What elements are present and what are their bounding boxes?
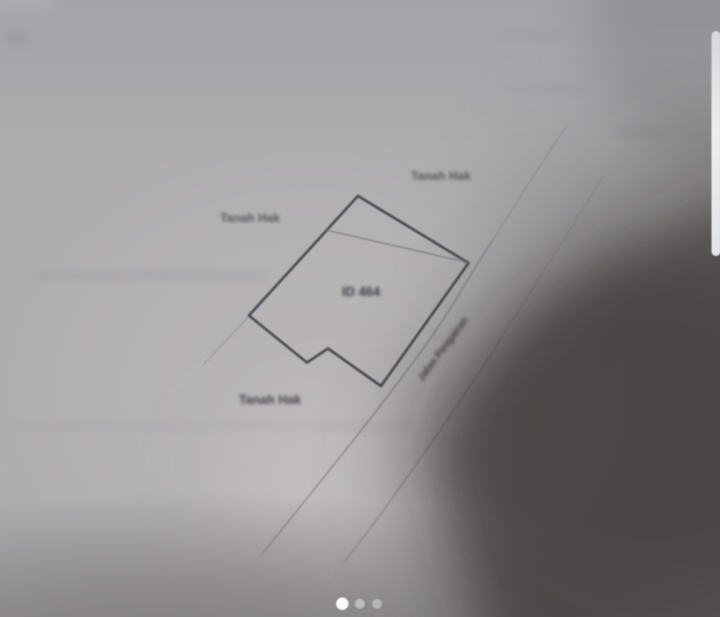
svg-text:ID 464: ID 464 — [342, 284, 381, 299]
svg-text:Tanah Hak: Tanah Hak — [239, 393, 301, 407]
svg-text:Tanah Hak: Tanah Hak — [411, 169, 471, 183]
svg-text:Tanah Hak: Tanah Hak — [220, 211, 280, 225]
